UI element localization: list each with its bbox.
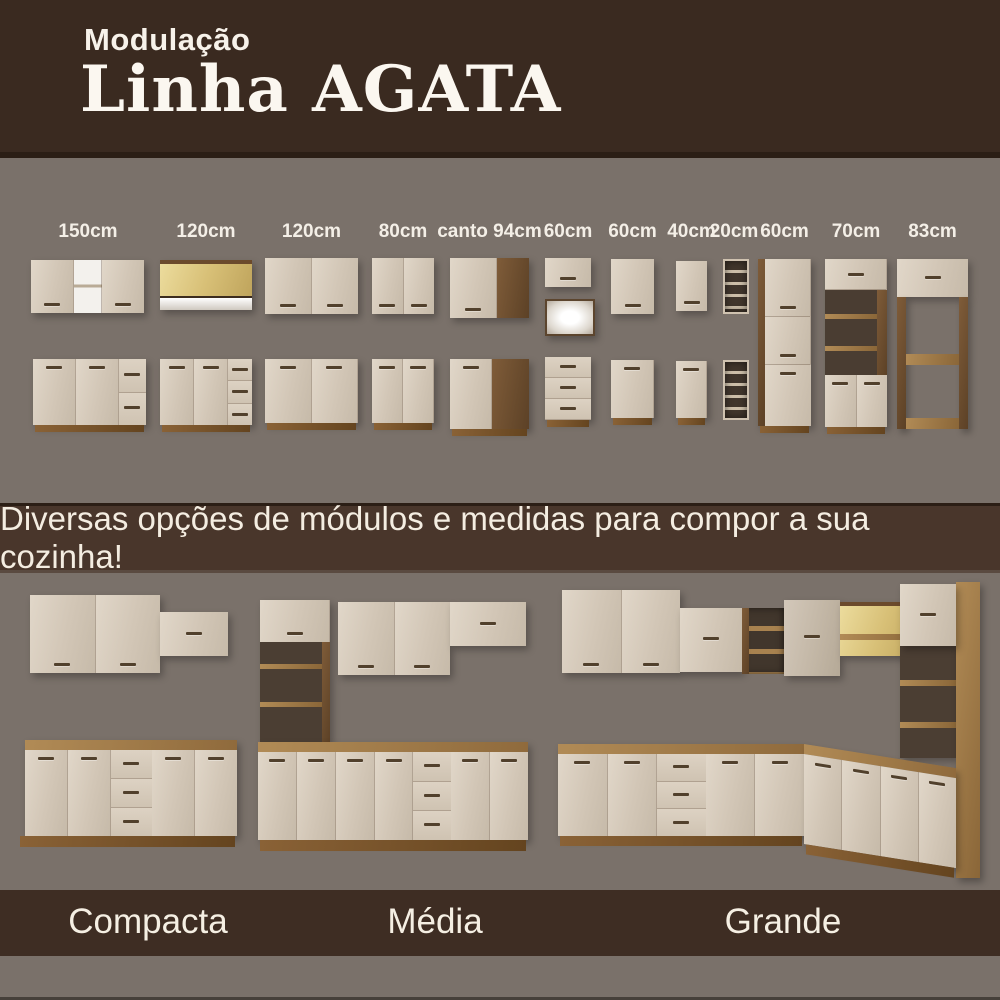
open-shelf-section — [900, 646, 956, 758]
wall-cabinet-glass — [160, 260, 252, 310]
glass-door — [160, 260, 252, 296]
kitchen-grande — [552, 576, 980, 886]
countertop — [25, 740, 237, 750]
cabinet-door — [611, 259, 654, 314]
cabinet-door — [195, 750, 237, 836]
corner-wood-panel — [497, 258, 529, 318]
kitchen-media — [258, 582, 528, 872]
side-wood-panel — [322, 642, 330, 742]
page-title: Linha AGATA — [80, 52, 561, 127]
module-canto-94cm: canto 94cm — [450, 158, 529, 503]
wall-cabinet-stepped — [450, 602, 526, 646]
plinth — [267, 423, 356, 430]
drawer — [545, 399, 591, 420]
drawer-stack — [111, 750, 153, 836]
cabinet-door — [404, 258, 435, 314]
module-size-label: 120cm — [282, 221, 341, 243]
cabinet-door — [765, 317, 811, 365]
shelf — [825, 346, 877, 351]
wall-cabinet — [338, 602, 450, 675]
countertop — [558, 744, 804, 754]
drawer — [413, 752, 451, 782]
kitchen-compacta — [25, 582, 240, 872]
flip-wall-cabinet — [545, 258, 591, 287]
corner-open-shelves — [742, 608, 784, 674]
drawer-stack — [413, 752, 451, 840]
drawer — [119, 393, 146, 426]
module-size-label: canto 94cm — [437, 221, 542, 243]
message-banner: Diversas opções de módulos e medidas par… — [0, 503, 1000, 573]
cabinet-door — [338, 602, 395, 675]
cabinet-door — [450, 359, 492, 429]
open-shelf-unit — [723, 360, 749, 420]
plinth — [374, 423, 432, 430]
cabinet-door — [784, 600, 840, 676]
cabinet-door — [375, 752, 414, 840]
drawer — [119, 359, 146, 393]
drawer — [228, 404, 252, 425]
cabinet-door — [76, 359, 119, 425]
cabinet-door — [558, 754, 608, 836]
module-size-label: 20cm — [710, 221, 759, 243]
module-83cm-tall: 83cm — [897, 158, 968, 503]
frame-middle-shelf — [906, 354, 959, 365]
cabinet-door — [194, 359, 228, 425]
shelf — [260, 664, 322, 669]
cabinet-door — [450, 258, 497, 318]
countertop — [258, 742, 528, 752]
drawer — [413, 811, 451, 840]
tall-fridge-frame — [897, 259, 968, 429]
cabinet-door — [562, 590, 622, 673]
cabinet-door — [312, 359, 359, 423]
shelf — [900, 722, 956, 728]
cabinet-door — [96, 595, 161, 673]
base-run-left — [558, 744, 804, 836]
side-wood-panel — [877, 290, 887, 375]
cabinet-door — [395, 602, 451, 675]
cabinet-door — [490, 752, 528, 840]
wall-cabinet — [372, 258, 434, 314]
cabinet-door — [706, 754, 756, 836]
drawer — [545, 357, 591, 378]
cabinet-door — [372, 258, 404, 314]
plinth — [35, 425, 144, 432]
base-cabinet — [265, 359, 358, 423]
wall-cabinet-stepped — [680, 608, 742, 672]
cabinet-door — [31, 260, 74, 313]
tall-pantry-cabinet — [758, 259, 811, 426]
tall-oven-tower — [825, 259, 887, 427]
drawer — [228, 359, 252, 381]
plinth — [452, 429, 527, 436]
cabinet-door — [608, 754, 658, 836]
module-60cm: 60cm — [611, 158, 654, 503]
cabinet-door — [897, 259, 968, 297]
banner-text: Diversas opções de módulos e medidas par… — [0, 500, 1000, 576]
cabinet-door — [900, 584, 956, 646]
cabinet-door — [676, 261, 707, 311]
cabinet-door — [450, 602, 526, 646]
drawer-stack — [657, 754, 706, 836]
plinth — [613, 418, 652, 425]
base-cabinet — [676, 361, 707, 418]
module-40cm: 40cm — [676, 158, 707, 503]
corner-base-cabinet — [450, 359, 529, 429]
wall-cabinet-stepped — [160, 612, 228, 656]
cabinet-door — [312, 258, 358, 314]
base-front — [258, 752, 528, 840]
plinth — [827, 427, 885, 434]
cabinet-door — [258, 752, 297, 840]
drawer — [413, 782, 451, 812]
open-shelf — [74, 260, 102, 313]
cabinet-door — [68, 750, 111, 836]
wall-cabinet — [265, 258, 358, 314]
cabinet-door — [33, 359, 76, 425]
tall-tower — [260, 600, 330, 742]
module-size-label: 150cm — [58, 221, 117, 243]
module-size-label: 60cm — [608, 221, 657, 243]
kitchen-label-grande: Grande — [683, 902, 883, 942]
cabinet-door — [881, 766, 919, 862]
module-size-label: 60cm — [760, 221, 809, 243]
drawer — [657, 809, 706, 836]
cabinet-door — [755, 754, 804, 836]
cabinet-door — [622, 590, 681, 673]
top-right-cabinet — [900, 584, 956, 646]
cabinet-door — [372, 359, 403, 423]
cabinet-door — [403, 359, 434, 423]
drawer-stack — [119, 359, 146, 425]
wall-cabinet — [562, 590, 680, 673]
header-band: Modulação Linha AGATA — [0, 0, 1000, 158]
frame-left-bar — [897, 297, 906, 429]
cabinet-door — [260, 600, 330, 642]
module-80cm: 80cm — [372, 158, 434, 503]
frame-right-bar — [959, 297, 968, 429]
frame-bottom-shelf — [906, 418, 959, 429]
tall-side-panel — [956, 582, 980, 878]
base-cabinet — [160, 359, 252, 425]
shelf — [825, 314, 877, 319]
cabinet-door — [765, 259, 811, 317]
wall-cabinet — [31, 260, 144, 313]
drawer — [545, 378, 591, 399]
base-run — [258, 742, 528, 840]
module-120cm-glass: 120cm — [160, 158, 252, 503]
drawer — [228, 381, 252, 403]
wall-cabinet — [30, 595, 160, 673]
drawer — [111, 750, 153, 779]
side-wood-panel — [742, 608, 749, 674]
module-150cm: 150cm — [30, 158, 146, 503]
base-front — [558, 754, 804, 836]
cabinet-door — [680, 608, 742, 672]
lighted-niche-cabinet — [545, 299, 595, 336]
cabinet-door — [842, 760, 880, 856]
base-cabinet — [611, 360, 654, 418]
module-60cm-tall: 60cm — [758, 158, 811, 503]
plinth — [760, 426, 809, 433]
cabinet-door — [765, 365, 811, 426]
module-20cm-niche: 20cm — [723, 158, 745, 503]
module-size-label: 120cm — [176, 221, 235, 243]
cabinet-door — [676, 361, 707, 418]
modules-section: 150cm 120cm — [0, 158, 1000, 503]
module-size-label: 83cm — [908, 221, 957, 243]
side-wood-panel — [758, 259, 765, 426]
cabinet-door — [265, 258, 312, 314]
cabinet-door — [102, 260, 144, 313]
drawer — [111, 779, 153, 808]
top-cabinet — [897, 259, 968, 297]
under-cabinet-light — [160, 296, 252, 310]
kitchens-section — [0, 570, 1000, 890]
module-60cm-flip: 60cm — [545, 158, 591, 503]
cabinet-door — [297, 752, 336, 840]
shelf — [900, 680, 956, 686]
wall-cabinet — [784, 600, 840, 676]
cabinet-door — [160, 612, 228, 656]
module-size-label: 80cm — [379, 221, 428, 243]
drawer — [111, 808, 153, 836]
drawer — [657, 782, 706, 810]
kitchen-label-media: Média — [335, 902, 535, 942]
kitchen-label-compacta: Compacta — [48, 902, 248, 942]
cabinet-door — [611, 360, 654, 418]
footer-band: Compacta Média Grande — [0, 890, 1000, 956]
wall-cabinet — [676, 261, 707, 311]
plinth — [678, 418, 705, 425]
base-run — [25, 740, 237, 836]
door-column — [765, 259, 811, 426]
cabinet-door — [825, 375, 857, 427]
module-70cm-tall: 70cm — [825, 158, 887, 503]
cabinet-door — [30, 595, 96, 673]
drawer-base-cabinet — [545, 357, 591, 420]
cabinet-door — [919, 772, 956, 868]
cabinet-door — [265, 359, 312, 423]
cabinet-door — [804, 754, 842, 850]
plinth — [20, 836, 235, 847]
cabinet-door — [160, 359, 194, 425]
plinth — [560, 836, 802, 846]
wall-cabinet — [611, 259, 654, 314]
base-cabinet — [372, 359, 434, 423]
module-120cm: 120cm — [265, 158, 358, 503]
module-size-label: 40cm — [667, 221, 716, 243]
shelf — [260, 702, 322, 707]
open-shelf-unit — [723, 259, 749, 314]
cabinet-door — [152, 750, 195, 836]
lower-doors — [825, 375, 887, 427]
base-run-right — [804, 744, 956, 868]
open-shelf-section — [260, 642, 330, 742]
module-size-label: 60cm — [544, 221, 593, 243]
cabinet-door — [857, 375, 888, 427]
cabinet-door — [825, 259, 887, 290]
cabinet-door — [336, 752, 375, 840]
drawer — [657, 754, 706, 782]
cabinet-door — [25, 750, 68, 836]
module-size-label: 70cm — [832, 221, 881, 243]
drawer-stack — [228, 359, 252, 425]
plinth — [162, 425, 250, 432]
plinth — [260, 840, 526, 851]
plinth — [547, 420, 589, 427]
base-front — [25, 750, 237, 836]
corner-wood-panel — [492, 359, 529, 429]
open-shelf-section — [825, 290, 887, 375]
base-cabinet — [33, 359, 146, 425]
corner-wall-cabinet — [450, 258, 529, 318]
cabinet-door — [451, 752, 490, 840]
flip-door — [545, 258, 591, 287]
